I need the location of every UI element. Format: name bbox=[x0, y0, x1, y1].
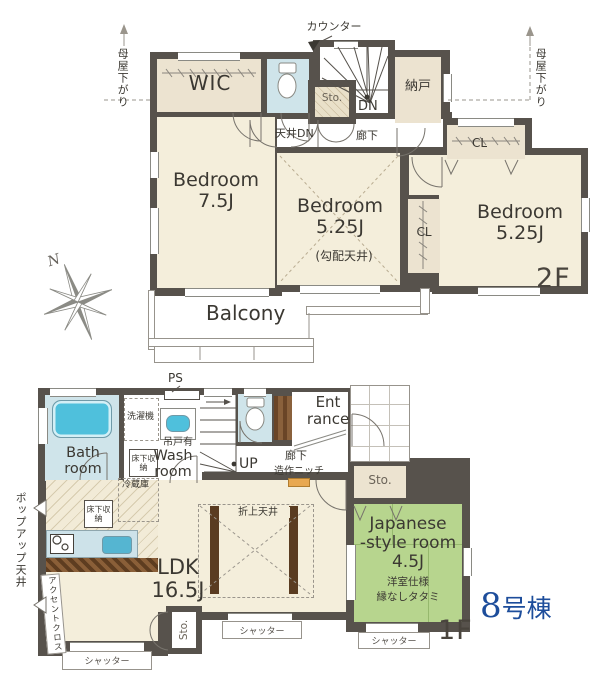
bedroom2-label: Bedroom 5.25J bbox=[288, 196, 392, 238]
moyasagari-left-label: 母屋下がり bbox=[116, 48, 128, 108]
toilet-icon-1f bbox=[246, 398, 264, 430]
unit-label: 8号棟 bbox=[480, 588, 552, 625]
popup-ceiling-pointers bbox=[34, 500, 46, 613]
wash-room-label: Wash room bbox=[144, 449, 202, 481]
hallway-2f-label: 廊下 bbox=[356, 130, 378, 142]
storage-living-label-wrap: Sto. bbox=[172, 612, 196, 648]
entrance-step-lines bbox=[294, 430, 346, 450]
niche-label: 造作ニッチ bbox=[274, 466, 324, 477]
unit-number: 8 bbox=[480, 586, 502, 626]
floor2-label: 2F bbox=[536, 264, 571, 294]
ldk-label: LDK 16.5J bbox=[140, 556, 216, 602]
bedroom1-name: Bedroom bbox=[166, 170, 266, 191]
balcony-label: Balcony bbox=[206, 302, 285, 324]
floor-plan-canvas: シャッター シャッター シャッター 床下収納 床下収納 アクセントクロス bbox=[0, 0, 609, 688]
up-label: UP bbox=[239, 457, 258, 472]
ldk-size: 16.5J bbox=[140, 579, 216, 602]
bedroom1-size: 7.5J bbox=[166, 191, 266, 212]
bedroom2-note: (勾配天井) bbox=[293, 250, 395, 263]
entrance-label: Ent rance bbox=[302, 394, 354, 427]
bedroom2-size: 5.25J bbox=[288, 217, 392, 238]
japanese-room-note1: 洋室仕様 bbox=[354, 577, 462, 589]
storage-living-label: Sto. bbox=[178, 620, 190, 640]
toilet-icon-2f bbox=[278, 63, 296, 98]
japanese-room-line1: Japanese bbox=[354, 515, 462, 534]
bedroom1-label: Bedroom 7.5J bbox=[166, 170, 266, 212]
japanese-room-size: 4.5J bbox=[354, 553, 462, 572]
moyasagari-right-label: 母屋下がり bbox=[534, 48, 546, 108]
ps-label: PS bbox=[168, 372, 183, 385]
bedroom3-label: Bedroom 5.25J bbox=[468, 202, 572, 244]
compass-north-label: N bbox=[45, 251, 63, 271]
bath-room-label: Bath room bbox=[52, 446, 114, 478]
refrigerator-label: 冷蔵庫 bbox=[122, 481, 149, 491]
compass-star bbox=[30, 252, 125, 348]
japanese-room-line2: -style room bbox=[354, 534, 462, 553]
hanging-cabinet-label: 吊戸有 bbox=[163, 437, 193, 448]
raised-ceiling-marks bbox=[200, 506, 310, 594]
nando-label: 納戸 bbox=[397, 80, 439, 94]
bedroom3-size: 5.25J bbox=[468, 223, 572, 244]
closet-mid-label: CL bbox=[408, 226, 440, 239]
down-label: DN bbox=[358, 100, 378, 114]
storage-entrance-label: Sto. bbox=[354, 474, 406, 487]
ceiling-down-label: 天井DN bbox=[275, 128, 314, 140]
moyasagari-marks bbox=[104, 24, 534, 100]
japanese-room-note2: 縁なしタタミ bbox=[354, 592, 462, 604]
bedroom2-name: Bedroom bbox=[288, 196, 392, 217]
compass-rose-icon: N bbox=[30, 248, 126, 348]
closet-top-label: CL bbox=[472, 137, 487, 150]
staircase-1f-icon bbox=[200, 395, 236, 472]
floor1-label: 1F bbox=[438, 616, 473, 646]
bedroom3-name: Bedroom bbox=[468, 202, 572, 223]
japanese-room-label: Japanese -style room 4.5J 洋室仕様 縁なしタタミ bbox=[354, 515, 462, 604]
hallway-1f-label: 廊下 bbox=[285, 450, 307, 462]
counter-label: カウンター bbox=[296, 21, 372, 33]
wic-label: WIC bbox=[180, 72, 240, 94]
ldk-name: LDK bbox=[140, 556, 216, 579]
unit-suffix: 号棟 bbox=[502, 594, 552, 623]
washer-label: 洗濯機 bbox=[127, 413, 154, 423]
popup-ceiling-label: ポップアップ天井 bbox=[14, 492, 26, 588]
stove-burners-icon bbox=[53, 536, 68, 550]
raised-ceiling-label: 折上天井 bbox=[226, 507, 290, 518]
storage-2f-label: Sto. bbox=[316, 93, 348, 105]
